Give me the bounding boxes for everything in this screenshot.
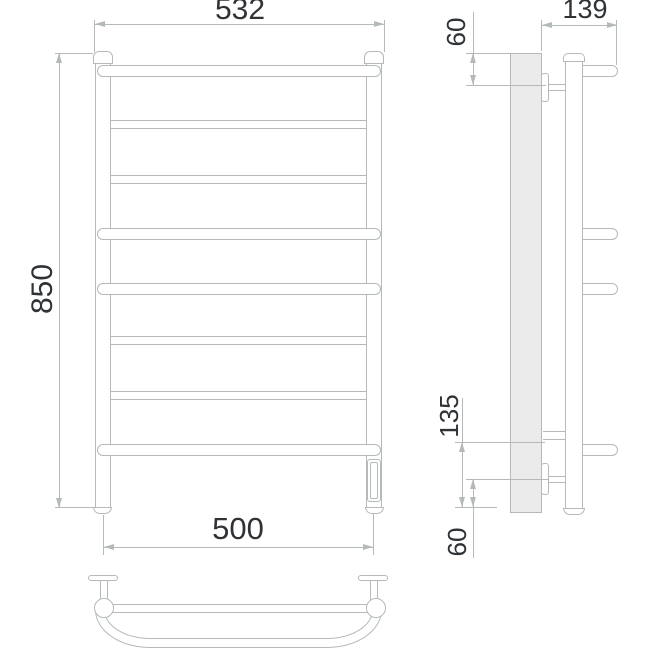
side-tube-top-cap xyxy=(563,53,585,62)
towel-bar-thin xyxy=(108,120,370,129)
left-tube-top-cap xyxy=(93,51,113,64)
towel-bar-wide xyxy=(97,444,381,456)
dim-connection-spacing-label: 500 xyxy=(188,513,288,544)
dim-arrow xyxy=(470,497,476,507)
extension-line xyxy=(466,85,546,86)
extension-line xyxy=(466,479,549,480)
mounting-bracket-flange xyxy=(541,73,549,102)
dimension-line xyxy=(473,479,474,558)
dim-arrow xyxy=(56,53,62,63)
wall-panel xyxy=(510,53,542,513)
heating-element-inner xyxy=(370,462,378,499)
towel-bar-thin xyxy=(108,175,370,184)
dim-arrow xyxy=(374,21,384,27)
dim-arrow xyxy=(470,75,476,85)
dimension-line xyxy=(542,25,617,26)
towel-bar-thin xyxy=(108,391,370,400)
dimension-line xyxy=(59,53,60,508)
mounting-bracket-pin xyxy=(548,84,566,91)
towel-bar-wide xyxy=(97,283,381,295)
left-vertical-tube xyxy=(95,56,111,508)
extension-line xyxy=(455,442,545,443)
dim-overall-depth-label: 139 xyxy=(535,0,635,23)
plan-bracket-flange xyxy=(358,575,388,581)
towel-bar-wide xyxy=(97,228,381,240)
right-tube-top-cap xyxy=(364,51,384,64)
extension-line xyxy=(373,513,374,555)
plan-tube-circle xyxy=(94,598,114,618)
towel-bar-wide xyxy=(97,65,381,77)
plan-curved-bar-inner xyxy=(104,608,373,639)
plan-tube-circle xyxy=(366,598,386,618)
dim-arrow xyxy=(95,21,105,27)
right-vertical-tube xyxy=(366,56,382,508)
side-tube-bottom-cap xyxy=(563,508,585,515)
towel-rail-technical-drawing: 532 850 500 xyxy=(0,0,650,650)
plan-bracket-flange xyxy=(88,575,118,581)
towel-bar-thin xyxy=(108,336,370,345)
dim-bottom-bar-offset-label: 135 xyxy=(436,366,462,466)
dimension-line xyxy=(104,547,373,548)
dim-arrow xyxy=(56,498,62,508)
dim-arrow xyxy=(104,544,114,550)
dim-overall-height-label: 850 xyxy=(28,239,58,339)
left-tube-bottom-cap xyxy=(93,507,112,514)
extension-line xyxy=(384,20,385,52)
dim-top-bracket-offset-label: 60 xyxy=(443,0,469,82)
dim-arrow xyxy=(470,479,476,489)
lower-crossbar xyxy=(543,431,566,440)
mounting-bracket-pin xyxy=(548,476,566,483)
right-tube-bottom-cap xyxy=(365,507,384,514)
side-vertical-tube xyxy=(565,53,583,515)
dim-arrow xyxy=(363,544,373,550)
dim-overall-width-label: 532 xyxy=(190,0,290,25)
dim-bottom-bracket-offset-label: 60 xyxy=(444,492,470,592)
dim-arrow xyxy=(470,53,476,63)
